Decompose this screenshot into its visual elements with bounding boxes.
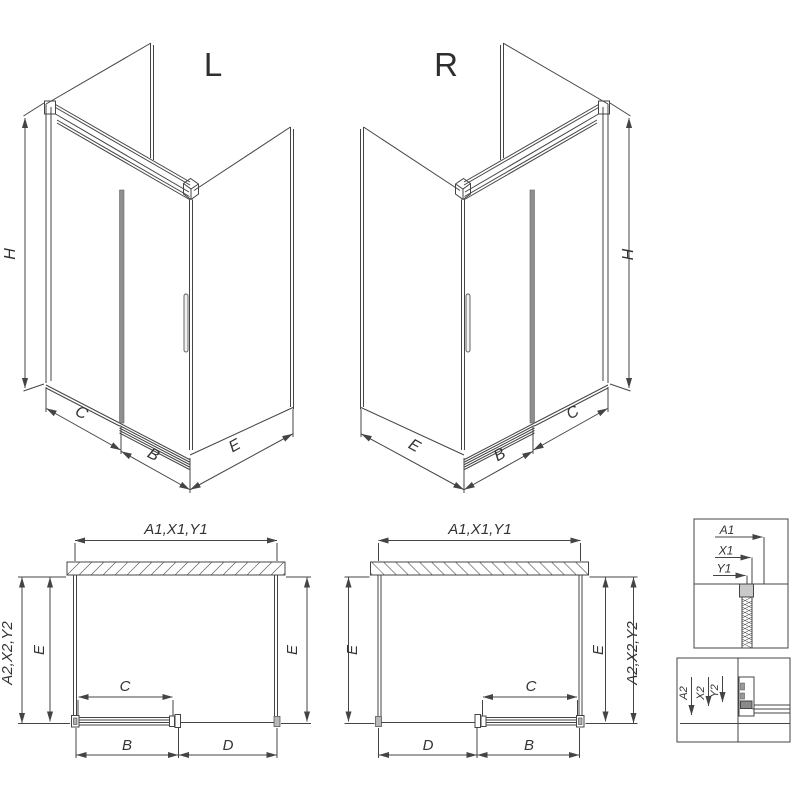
plan-l-c-label: C <box>120 678 131 695</box>
plan-view-left <box>18 541 311 759</box>
dim-label-c-right-iso: C <box>564 403 583 424</box>
glass-section-hatch <box>742 597 752 648</box>
plan-r-b-label: B <box>524 737 534 754</box>
glass-section-edges <box>742 597 752 648</box>
detail-a1-label: A1 <box>719 523 735 537</box>
plan-l-e-right: E <box>284 644 301 655</box>
detail-a2-label: A2 <box>678 686 690 700</box>
wall-bracket-section <box>740 584 754 597</box>
floor-profile-detail <box>677 658 790 742</box>
track-lines <box>753 705 791 713</box>
plan-r-e-right: E <box>590 644 607 655</box>
view-title-right: R <box>434 46 458 83</box>
dim-label-e-right-iso: E <box>405 436 423 456</box>
detail-y1-label: Y1 <box>717 562 732 576</box>
plan-r-e-left: E <box>344 644 361 655</box>
dim-label-h-right: H <box>618 248 635 260</box>
plan-r-c-label: C <box>526 678 537 695</box>
dim-label-e-left: E <box>226 436 244 456</box>
detail-box-bottom <box>677 658 790 742</box>
view-title-left: L <box>204 46 222 83</box>
plan-r-width-label: A1,X1,Y1 <box>447 521 511 538</box>
dim-label-h-left: H <box>2 248 19 260</box>
plan-l-d-label: D <box>223 737 234 754</box>
dim-label-c-left: C <box>72 403 91 424</box>
plan-l-b-label: B <box>122 737 132 754</box>
wall-profile-detail <box>694 519 788 648</box>
fixing-block-2 <box>741 693 745 699</box>
detail-y2-label: Y2 <box>709 684 721 697</box>
plan-r-outer-depth-label: A2,X2,Y2 <box>624 621 641 686</box>
iso-view-right <box>361 43 631 493</box>
detail-x1-label: X1 <box>718 544 734 558</box>
plan-l-width-label: A1,X1,Y1 <box>143 521 207 538</box>
dim-label-b-left: B <box>144 445 162 465</box>
plan-l-e-left: E <box>31 644 48 655</box>
detail-x2-label: X2 <box>695 686 707 700</box>
iso-view-left <box>24 43 294 493</box>
labels: L H C B E R H E B C A1,X1,Y1 A2,X2,Y2 E … <box>0 46 734 754</box>
technical-drawing-page: L H C B E R H E B C A1,X1,Y1 A2,X2,Y2 E … <box>0 0 800 800</box>
plan-l-outer-depth-label: A2,X2,Y2 <box>0 621 16 686</box>
shower-enclosure-drawing: L H C B E R H E B C A1,X1,Y1 A2,X2,Y2 E … <box>0 0 800 800</box>
fixing-block-1 <box>741 683 745 690</box>
floor-track-section <box>741 701 753 709</box>
plan-r-d-label: D <box>423 737 434 754</box>
